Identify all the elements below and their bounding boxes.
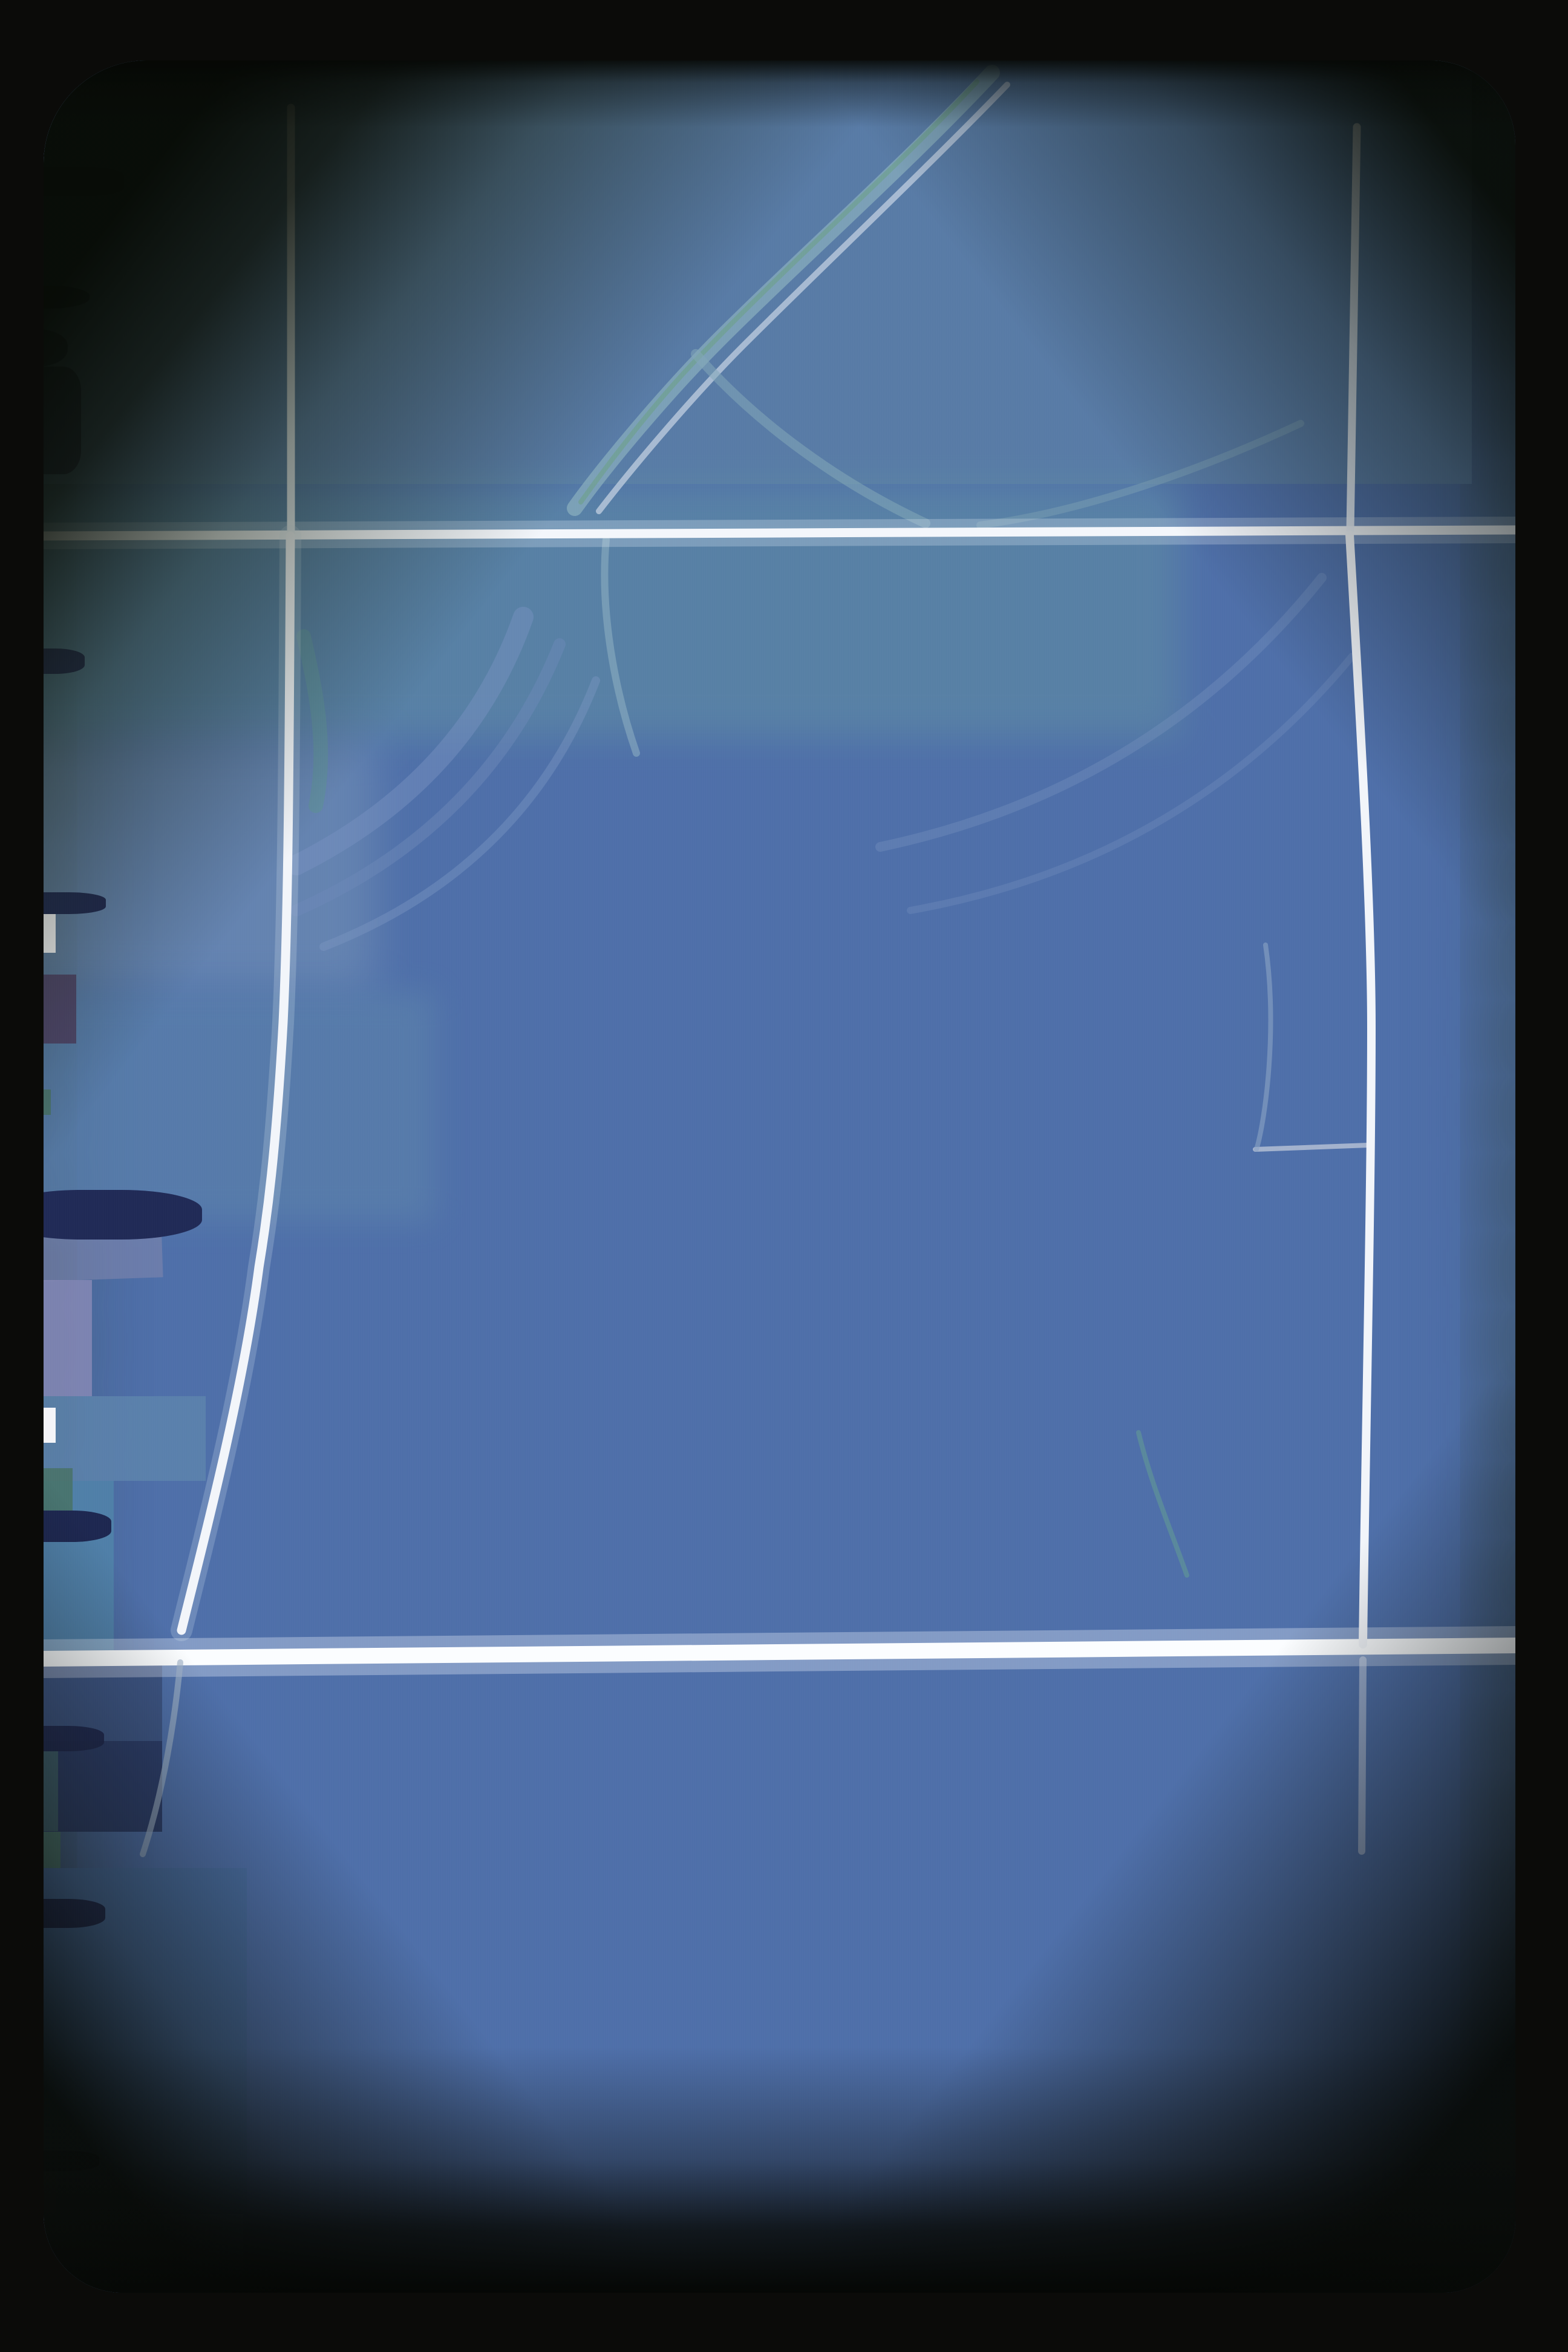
farmstead-trees bbox=[44, 1190, 202, 1240]
contour-arc-e1 bbox=[880, 578, 1322, 847]
farmstead-trees bbox=[44, 648, 85, 674]
decor-layer bbox=[44, 60, 202, 2293]
farmstead-trees bbox=[44, 167, 124, 196]
stream-mauve-field bbox=[1138, 1432, 1187, 1575]
aerial-scene bbox=[44, 60, 1515, 2293]
farm-track-east bbox=[1255, 1145, 1368, 1149]
contour-arc-w1 bbox=[296, 617, 523, 865]
farm-yard-green bbox=[44, 1468, 73, 1511]
stream-to-farmstead bbox=[696, 354, 926, 523]
farm-yard-purple bbox=[44, 2171, 56, 2228]
farm-yard-dark bbox=[44, 975, 76, 1044]
drainage-east bbox=[980, 423, 1301, 525]
contour-arc-e2 bbox=[910, 656, 1352, 910]
farm-yard-green bbox=[44, 1751, 58, 1831]
farm-building bbox=[44, 914, 56, 953]
farmstead-trees bbox=[44, 2151, 99, 2171]
farm-yard-green bbox=[44, 1089, 51, 1115]
roads-streams-layer bbox=[44, 60, 1515, 2293]
road-v-right bbox=[1350, 535, 1371, 1644]
farmstead-trees bbox=[44, 367, 81, 474]
farmstead-trees bbox=[44, 1511, 111, 1542]
green-channel bbox=[304, 636, 321, 806]
farmstead-trees bbox=[44, 1726, 104, 1751]
roadside-trees bbox=[44, 286, 90, 309]
stream-south bbox=[604, 540, 636, 753]
farmstead-trees bbox=[44, 1899, 105, 1928]
stream-braid-main bbox=[575, 73, 992, 508]
photo bbox=[44, 60, 1515, 2293]
roadside-trees bbox=[44, 329, 68, 367]
road-h1 bbox=[44, 530, 1515, 536]
farmstead-trees bbox=[44, 892, 106, 914]
farm-track-curvy bbox=[1256, 945, 1270, 1149]
road-v-right-top bbox=[1350, 127, 1357, 530]
slide-frame bbox=[0, 0, 1568, 2352]
farm-building bbox=[44, 1408, 56, 1443]
road-v-right-south bbox=[1362, 1660, 1363, 1851]
